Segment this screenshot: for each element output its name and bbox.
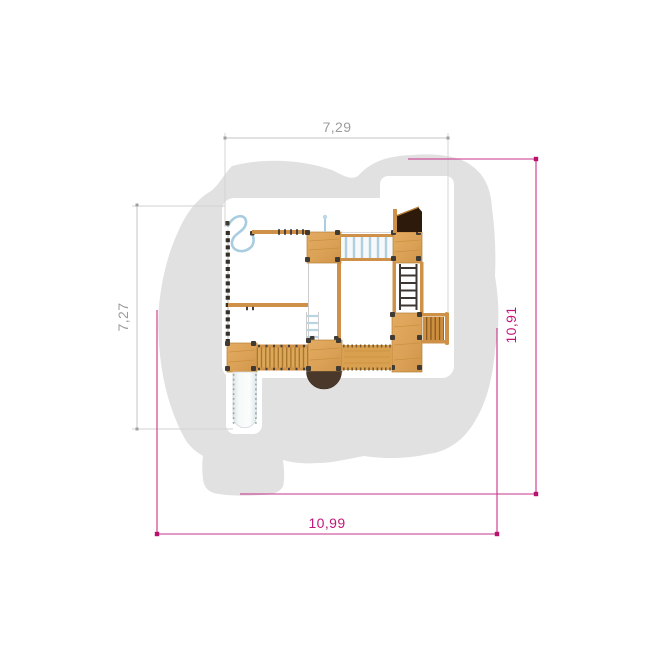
slide <box>233 372 257 428</box>
dimension-label-bottom: 10,99 <box>308 515 345 531</box>
plan-drawing: 7,29 7,27 10,91 10,99 <box>0 0 660 660</box>
connector-beam <box>337 263 341 343</box>
lower-right-platform <box>390 312 422 372</box>
upper-right-platform <box>391 230 422 263</box>
upper-left-platform <box>305 230 341 263</box>
dimension-label-top: 7,29 <box>323 119 352 135</box>
dimension-label-left: 7,27 <box>115 303 131 332</box>
cleat-ramp <box>342 345 392 370</box>
rope-bridge <box>341 234 393 261</box>
walkway-left-platform <box>225 341 257 372</box>
plan-canvas: 7,29 7,27 10,91 10,99 <box>0 0 660 660</box>
slat-bridge <box>257 345 308 371</box>
dimension-label-right: 10,91 <box>503 306 519 343</box>
walkway-mid-platform <box>306 336 342 372</box>
top-beam <box>252 230 308 234</box>
